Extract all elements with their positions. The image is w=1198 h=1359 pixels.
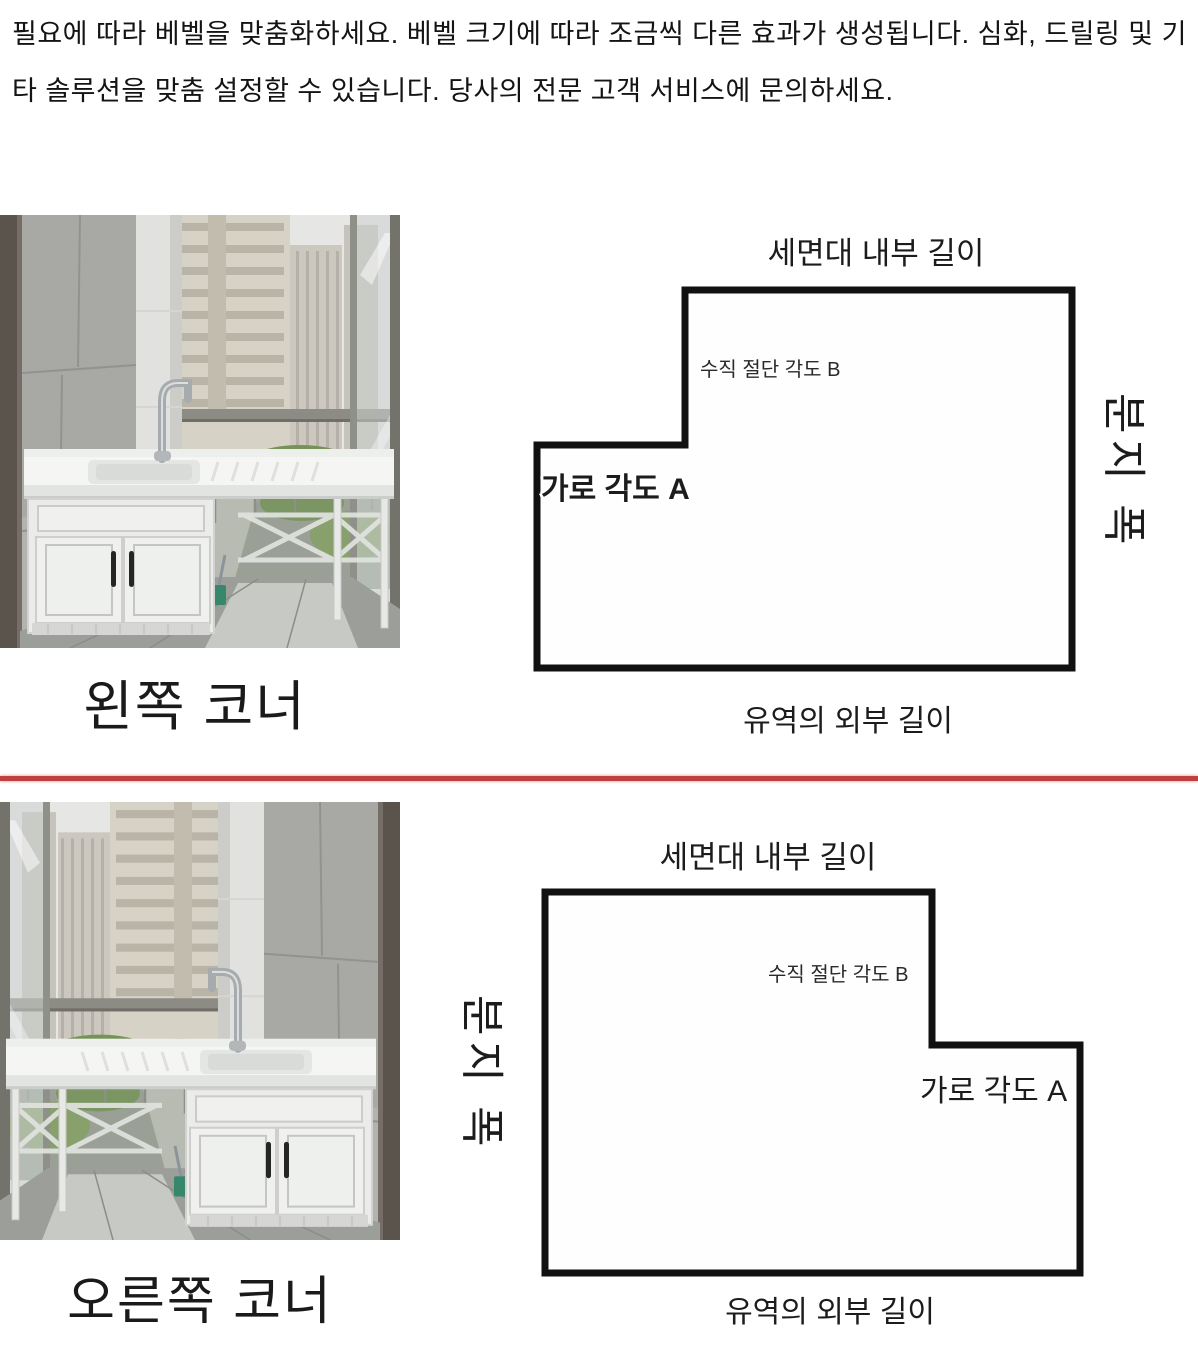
diagram1-basin-width-label: 분지 폭 bbox=[1096, 393, 1160, 563]
intro-text: 필요에 따라 베벨을 맞춤화하세요. 베벨 크기에 따라 조금씩 다른 효과가 … bbox=[12, 6, 1192, 120]
left-corner-photo bbox=[0, 215, 400, 648]
right-corner-photo bbox=[0, 802, 400, 1240]
left-corner-scene bbox=[0, 215, 400, 648]
right-corner-scene bbox=[0, 802, 400, 1240]
balcony-photo-mirrored-svg bbox=[0, 802, 400, 1240]
left-corner-caption: 왼쪽 코너 bbox=[0, 662, 390, 741]
right-corner-caption: 오른쪽 코너 bbox=[0, 1259, 400, 1334]
diagram2-horizontal-angle-label: 가로 각도 A bbox=[920, 1066, 1067, 1110]
diagram2-vertical-cut-label: 수직 절단 각도 B bbox=[768, 958, 908, 987]
diagram2-top-label: 세면대 내부 길이 bbox=[568, 832, 968, 877]
diagram1-vertical-cut-label: 수직 절단 각도 B bbox=[700, 353, 840, 382]
diagram1-bottom-label: 유역의 외부 길이 bbox=[648, 696, 1048, 740]
diagram2-basin-width-label: 분지 폭 bbox=[454, 995, 518, 1165]
diagram1-horizontal-angle-label: 가로 각도 A bbox=[541, 464, 690, 508]
diagram2-bottom-label: 유역의 외부 길이 bbox=[630, 1287, 1030, 1331]
balcony-photo-svg bbox=[0, 215, 400, 648]
page: 필요에 따라 베벨을 맞춤화하세요. 베벨 크기에 따라 조금씩 다른 효과가 … bbox=[0, 0, 1198, 1359]
diagram1-top-label: 세면대 내부 길이 bbox=[676, 228, 1076, 273]
section-divider bbox=[0, 776, 1198, 781]
